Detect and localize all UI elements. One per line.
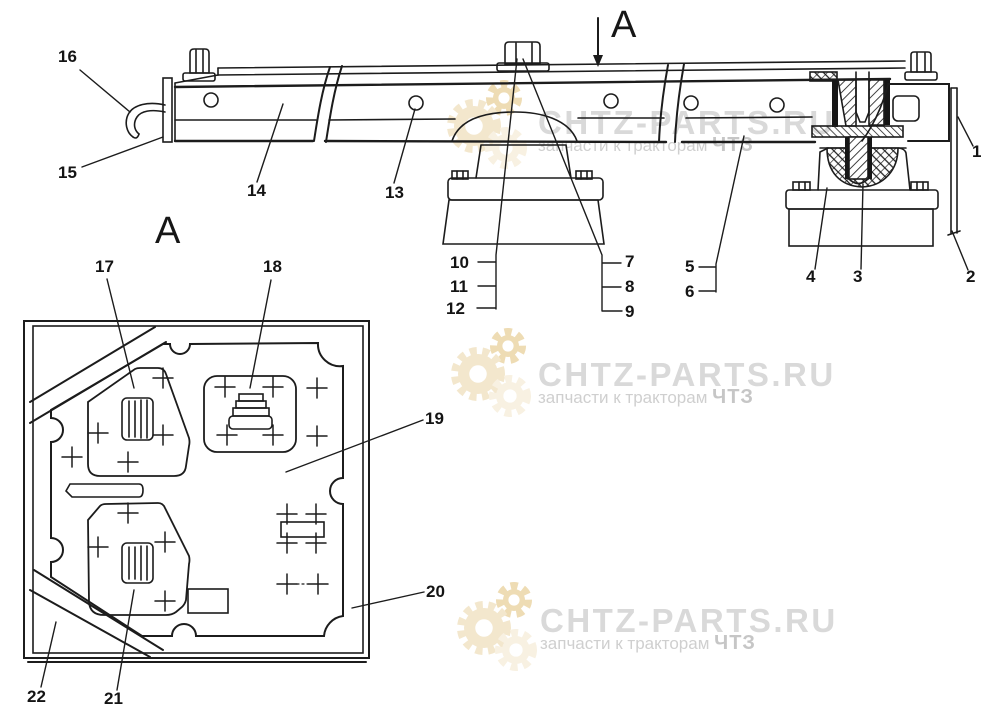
bolt-position-marks [62,368,328,611]
clamp-17-icon [122,398,153,440]
engine-mount-left [443,112,604,244]
hook-bracket [126,103,165,138]
callout-6: 6 [685,283,694,300]
section-a-view [24,279,424,690]
callout-12: 12 [446,300,465,317]
section-arrow-icon [593,18,603,67]
pad-21-tab [188,589,228,613]
clamp-21-icon [122,543,153,583]
diagram-canvas: 12345678910111213141516171819202122AACHT… [0,0,1000,718]
view-label-a-1: A [155,212,180,250]
beam-hole [770,98,784,112]
main-drawing-svg [0,0,1000,718]
callout-3: 3 [853,268,862,285]
mount-cross-section [810,72,906,187]
callout-8: 8 [625,278,634,295]
callout-22: 22 [27,688,46,705]
callout-4: 4 [806,268,815,285]
callout-10: 10 [450,254,469,271]
callout-9: 9 [625,303,634,320]
callout-15: 15 [58,164,77,181]
callout-11: 11 [450,278,468,295]
callout-14: 14 [247,182,266,199]
callout-13: 13 [385,184,404,201]
plate-contour [51,343,343,636]
beam-hole [204,93,218,107]
beam-assembly [80,18,973,311]
view-label-a-0: A [611,6,636,44]
pad-21 [88,503,190,615]
callout-7: 7 [625,253,634,270]
callout-18: 18 [263,258,282,275]
callout-1: 1 [972,143,981,160]
end-plate-left [163,78,172,142]
callout-2: 2 [966,268,975,285]
beam-hole [684,96,698,110]
callout-20: 20 [426,583,445,600]
beam-hole [604,94,618,108]
callout-17: 17 [95,258,114,275]
callout-21: 21 [104,690,123,707]
callout-16: 16 [58,48,77,65]
callout-5: 5 [685,258,694,275]
callout-19: 19 [425,410,444,427]
beam-hole [409,96,423,110]
slot-bar [66,484,143,497]
bolt-center-icon [497,42,549,71]
leader-lines-top [80,59,973,311]
clamp-18-icon [229,394,272,429]
pad-17 [88,368,190,476]
